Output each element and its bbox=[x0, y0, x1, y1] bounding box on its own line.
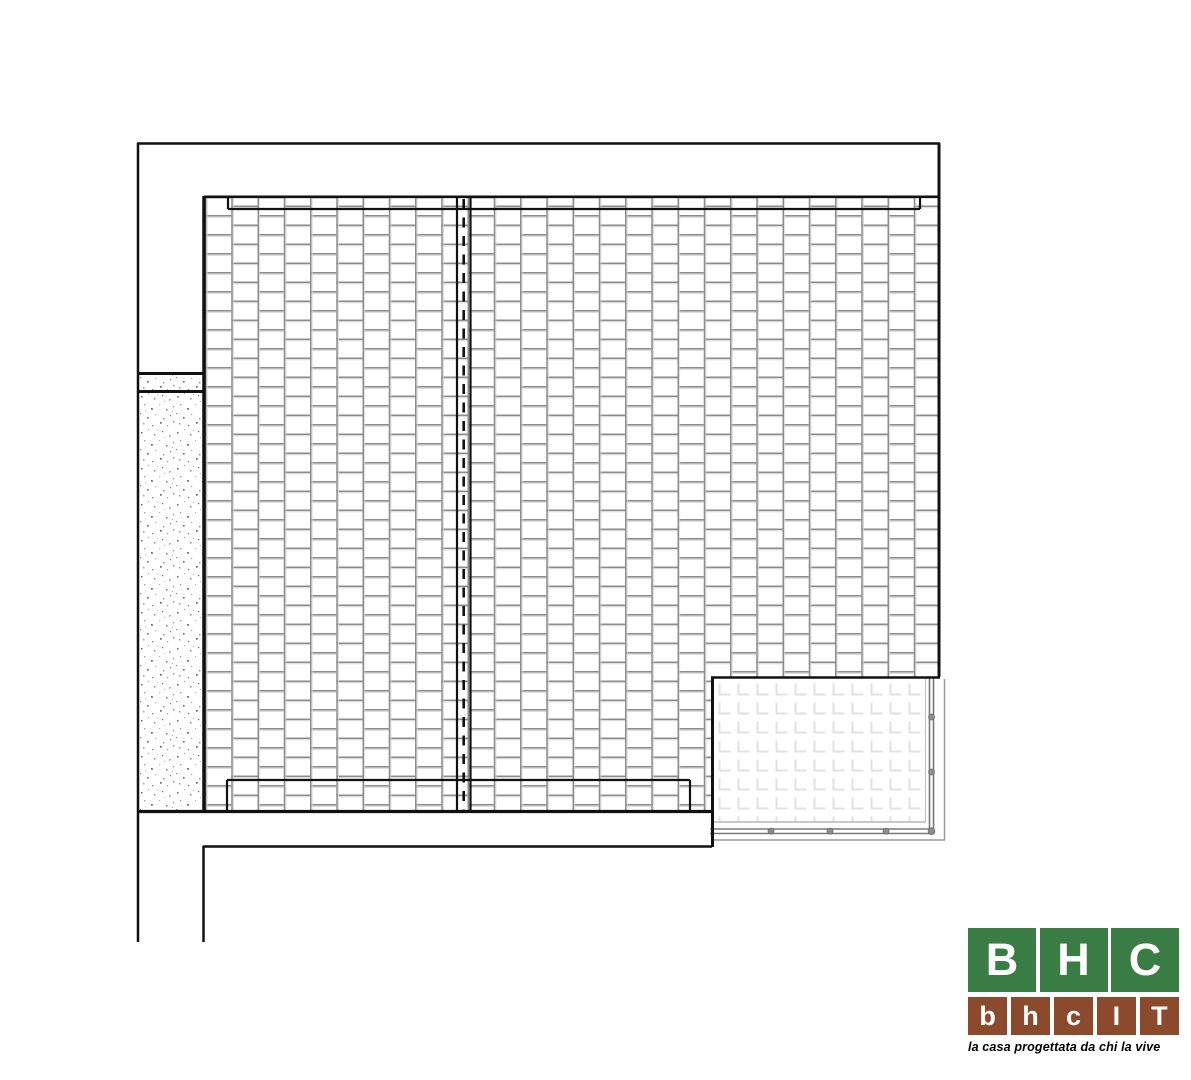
logo-letter: C bbox=[1129, 934, 1162, 986]
logo-tile-H: H bbox=[1040, 928, 1108, 992]
logo-letter: T bbox=[1151, 1001, 1168, 1032]
logo-letter: h bbox=[1022, 1001, 1039, 1032]
logo-letter: I bbox=[1113, 1001, 1121, 1032]
logo-tile-B: B bbox=[968, 928, 1036, 992]
logo-letter: B bbox=[986, 934, 1019, 986]
logo-tile-I: I bbox=[1097, 997, 1136, 1035]
stipple-top-band bbox=[139, 375, 203, 390]
logo-letter: c bbox=[1066, 1001, 1081, 1032]
logo-tile-b: b bbox=[968, 997, 1007, 1035]
logo-letter: H bbox=[1057, 934, 1090, 986]
logo-tagline: la casa progettata da chi la vive bbox=[968, 1040, 1179, 1054]
logo-brown-row: b h c I T bbox=[968, 997, 1179, 1035]
logo-tile-C: C bbox=[1111, 928, 1179, 992]
logo-letter: b bbox=[979, 1001, 996, 1032]
plan-drawing bbox=[0, 0, 1191, 1080]
terrace-grid-panel bbox=[710, 678, 945, 840]
bhc-logo: B H C b h c I T la c bbox=[968, 928, 1179, 1054]
logo-tile-h: h bbox=[1011, 997, 1050, 1035]
logo-tile-T: T bbox=[1140, 997, 1179, 1035]
logo-green-row: B H C bbox=[968, 928, 1179, 992]
stipple-column bbox=[138, 374, 204, 812]
logo-tile-c: c bbox=[1054, 997, 1093, 1035]
drawing-canvas: B H C b h c I T la c bbox=[0, 0, 1191, 1080]
stipple-main-fill bbox=[139, 393, 203, 811]
